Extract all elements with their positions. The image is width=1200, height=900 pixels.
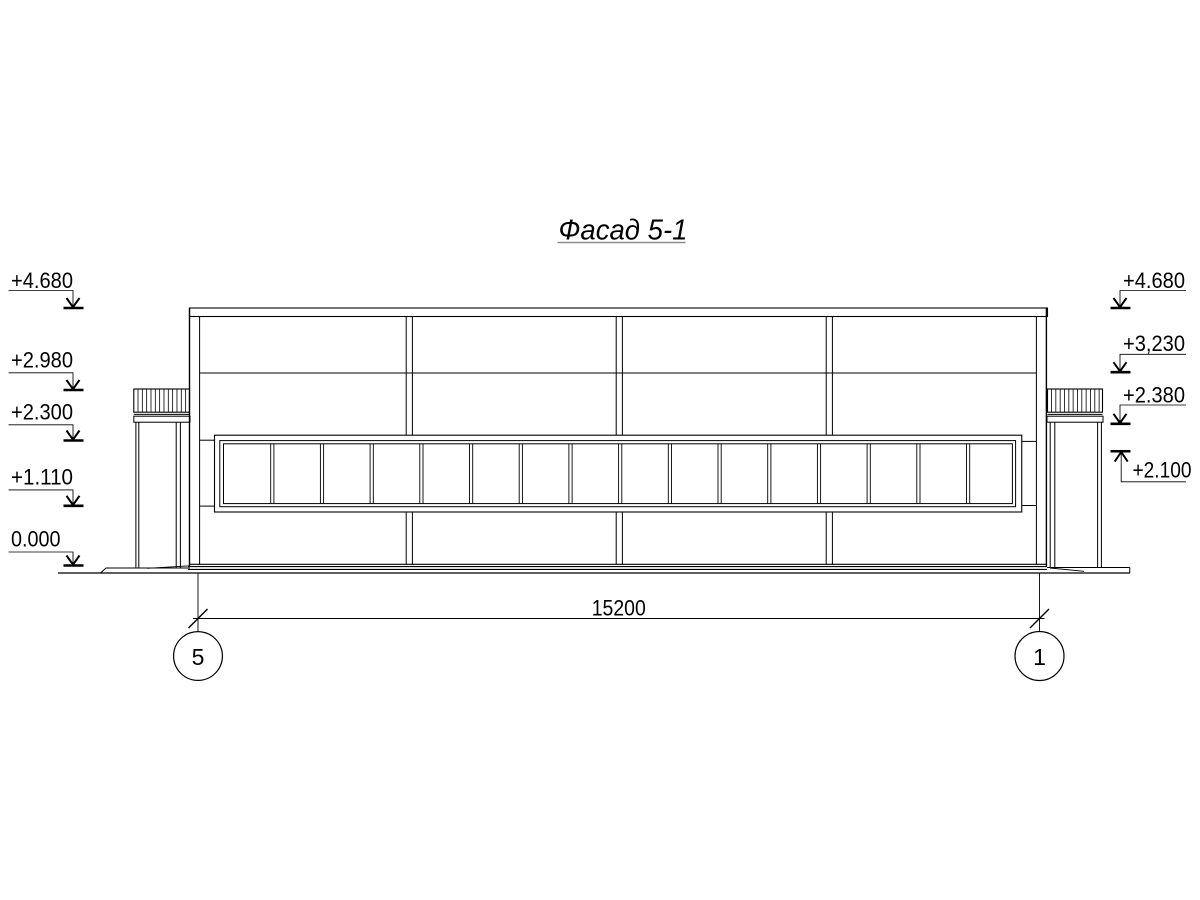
svg-text:Фасад 5-1: Фасад 5-1	[559, 215, 688, 247]
svg-text:+2.380: +2.380	[1123, 383, 1185, 408]
svg-text:0.000: 0.000	[11, 526, 61, 551]
svg-text:+2.100: +2.100	[1133, 458, 1192, 483]
svg-text:+1.110: +1.110	[11, 464, 73, 489]
svg-text:+4.680: +4.680	[1123, 268, 1185, 293]
svg-text:+2.300: +2.300	[11, 399, 73, 424]
svg-text:+2.980: +2.980	[11, 347, 73, 372]
svg-text:5: 5	[192, 644, 205, 670]
svg-text:+3,230: +3,230	[1123, 331, 1185, 356]
svg-text:1: 1	[1033, 644, 1046, 670]
svg-text:15200: 15200	[592, 596, 646, 621]
svg-text:+4.680: +4.680	[11, 268, 73, 293]
